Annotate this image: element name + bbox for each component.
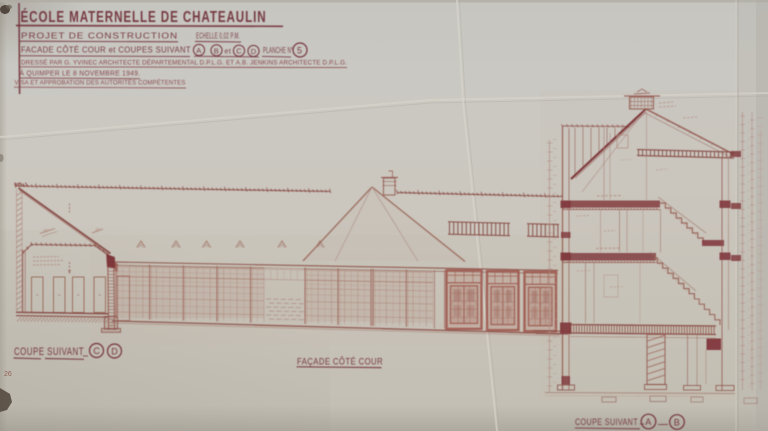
svg-text:26: 26	[4, 371, 12, 378]
svg-text:C: C	[93, 346, 100, 356]
svg-text:5: 5	[297, 45, 303, 55]
svg-text:COUPE SUIVANT: COUPE SUIVANT	[14, 346, 84, 358]
svg-text:30: 30	[95, 227, 101, 232]
svg-text:et: et	[225, 49, 232, 56]
svg-text:VISA ET APPROBATION DES AUTORI: VISA ET APPROBATION DES AUTORITÉS COMPÉT…	[15, 78, 186, 87]
svg-text:COUPE SUIVANT: COUPE SUIVANT	[575, 416, 638, 427]
svg-text:A: A	[645, 417, 652, 427]
svg-text:D: D	[111, 347, 118, 357]
svg-text:À QUIMPER LE 8 NOVEMBRE 1949.: À QUIMPER LE 8 NOVEMBRE 1949.	[20, 68, 141, 77]
svg-text:45°: 45°	[43, 228, 50, 233]
svg-text:D: D	[251, 47, 257, 56]
svg-text:PROJET DE CONSTRUCTION: PROJET DE CONSTRUCTION	[21, 31, 178, 41]
svg-text:ÉCOLE MATERNELLE DE CHATEAULIN: ÉCOLE MATERNELLE DE CHATEAULIN	[21, 9, 267, 26]
svg-text:FACADE CÔTÉ COUR et COUPES SUI: FACADE CÔTÉ COUR et COUPES SUIVANT	[21, 46, 191, 55]
svg-text:ECHELLE 0,02 P.M.: ECHELLE 0,02 P.M.	[196, 31, 240, 41]
svg-text:B: B	[214, 46, 220, 55]
svg-text:A: A	[196, 46, 202, 55]
svg-text:C: C	[236, 47, 242, 56]
svg-text:B: B	[674, 418, 681, 428]
svg-text:DRESSÉ PAR G. YVINEC ARCHITECT: DRESSÉ PAR G. YVINEC ARCHITECTE DÉPARTEM…	[21, 57, 347, 66]
svg-text:FAÇADE CÔTÉ COUR: FAÇADE CÔTÉ COUR	[297, 356, 383, 367]
svg-text:PLANCHE N°: PLANCHE N°	[263, 46, 293, 55]
